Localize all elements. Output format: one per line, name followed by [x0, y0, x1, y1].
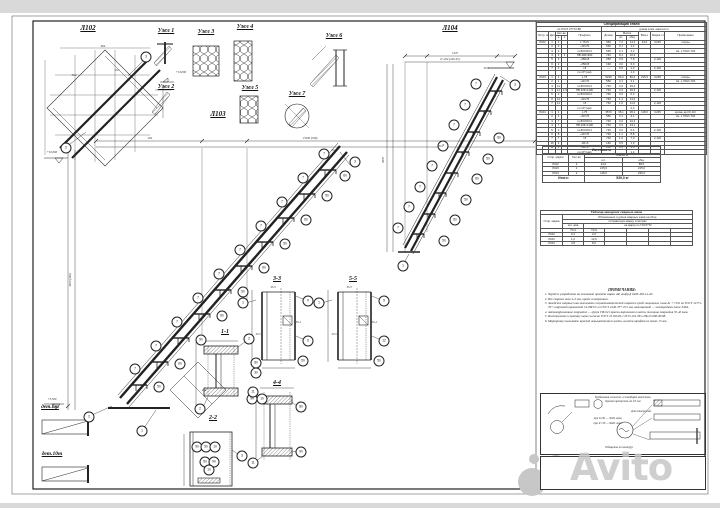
callout-bubble: 7: [130, 364, 141, 375]
callout-bubble: 7: [460, 100, 471, 111]
label-uzel7: Узел 7: [289, 91, 305, 97]
quality-line1: Кромки притупить до 0,5 мм: [541, 400, 705, 403]
label-section-5-5: 5-5: [349, 276, 357, 282]
callout-bubble: 5п: [322, 191, 333, 202]
quality-requirements-box: Требования согласно «Стандарт качества» …: [540, 393, 706, 455]
callout-bubble: 3п: [251, 368, 262, 379]
callout-bubble: 8п: [296, 402, 307, 413]
label-uzel1: Узел 1: [158, 28, 174, 34]
dimension-text: 294: [202, 388, 207, 392]
dimension-text: Уз.3: [346, 285, 351, 289]
callout-bubble: 7: [193, 293, 204, 304]
callout-bubble: 1: [137, 426, 148, 437]
label-uzel2: Узел 2: [158, 84, 174, 90]
label-det6: дет.6т: [41, 404, 59, 410]
dimension-text: Уз.1: [114, 68, 119, 72]
callout-bubble: 1: [398, 261, 409, 272]
callout-bubble: 7: [427, 161, 438, 172]
callout-bubble: 9п: [296, 447, 307, 458]
dimension-text: Уз.5: [331, 332, 336, 336]
label-l102: Л102: [80, 24, 95, 32]
notes-block: ПРИМЕЧАНИЯ: Чертёж разработан на основан…: [541, 288, 703, 325]
section-1-1: [196, 341, 246, 407]
callout-bubble: 6п: [450, 215, 461, 226]
callout-bubble: 5п: [483, 154, 494, 165]
callout-bubble: 1п: [257, 394, 268, 405]
dimension-text: 4670 (346): [68, 273, 72, 286]
dimension-text: 1347: [452, 51, 458, 55]
callout-bubble: 7: [151, 341, 162, 352]
callout-bubble: 5п: [298, 356, 309, 367]
callout-bubble: 7: [256, 221, 267, 232]
make-title: Изготовить: [543, 147, 661, 154]
make-total-value: 539,0 кг: [585, 175, 661, 182]
callout-bubble: 7: [277, 197, 288, 208]
callout-bubble: 2: [61, 143, 72, 154]
callout-bubble: 7: [298, 173, 309, 184]
label-section-1-1: 1-1: [221, 329, 229, 335]
dimension-text: +3,300: [48, 397, 57, 401]
callout-bubble: 3: [350, 157, 361, 168]
spec-col-note: Примечание: [665, 31, 707, 40]
quality-note-1: при δ≤30 — Ф18, зенк.: [594, 416, 623, 420]
drawing-sheet-page: Л102 Узел 1 Узел 2 Узел 3 Узел 4 Узел 5 …: [0, 0, 720, 508]
quality-note-3: Для отверстий: [631, 409, 651, 413]
l103-elevation: [44, 139, 537, 428]
label-section-3-3: 3-3: [273, 276, 281, 282]
callout-bubble: 2: [244, 334, 255, 345]
dimension-text: Уз.1: [331, 148, 336, 152]
weld-row: Л1044,88,0: [541, 241, 693, 245]
label-l104: Л104: [442, 24, 457, 32]
spec-col-det: Дет.: [549, 31, 556, 40]
uzel1-sketch: [154, 42, 173, 66]
callout-bubble: 7: [172, 317, 183, 328]
spec-col-len: Длина: [602, 31, 616, 40]
uzel4-sketch: [234, 41, 252, 81]
callout-bubble: 1п: [210, 442, 221, 453]
callout-bubble: 2: [84, 412, 95, 423]
callout-bubble: 3: [510, 80, 521, 91]
spec-col-steel: Марка стали: [651, 31, 665, 40]
uzel7-sketch: [285, 104, 309, 128]
callout-bubble: 6: [303, 336, 314, 347]
callout-bubble: 5п: [374, 356, 385, 367]
callout-bubble: 6п: [472, 174, 483, 185]
det6-sketch: [42, 418, 88, 436]
dimension-text: Уз.7: [438, 144, 443, 148]
dimension-text: 4570: [381, 157, 385, 163]
weld-col-mark: Отпр. марка: [541, 215, 563, 228]
label-section-4-4: 4-4: [273, 380, 281, 386]
callout-bubble: 1: [238, 298, 249, 309]
callout-bubble: 2: [195, 404, 206, 415]
dimension-text: +10,000: [176, 70, 186, 74]
callout-bubble: 5п: [238, 287, 249, 298]
callout-bubble: 6п: [340, 171, 351, 182]
spec-col-all: Всего: [639, 31, 651, 40]
label-l103: Л103: [210, 110, 225, 118]
callout-bubble: 5п: [461, 195, 472, 206]
callout-bubble: 1: [314, 298, 325, 309]
callout-bubble: 7: [471, 79, 482, 90]
spec-col-profile: Профиль: [568, 31, 602, 40]
dimension-text: Уз.3: [270, 285, 275, 289]
callout-bubble: 11: [248, 458, 259, 469]
make-col-mark: Отпр. марки: [543, 154, 569, 163]
det10-sketch: [42, 465, 88, 483]
note-item: Маркировку выполнять краской невыцветаем…: [548, 320, 703, 324]
callout-bubble: 7: [415, 182, 426, 193]
label-uzel4: Узел 4: [237, 24, 253, 30]
callout-bubble: 5п: [439, 236, 450, 247]
callout-bubble: 6п: [175, 359, 186, 370]
callout-bubble: 6п: [259, 263, 270, 274]
note-item: Заводские сварные швы выполнять полуавто…: [548, 302, 703, 310]
dimension-text: 15290 (346): [303, 136, 318, 140]
weld-table: Таблица заводских сварных швов Отпр. мар…: [540, 210, 692, 246]
quality-note-4: Обварить по контуру: [605, 445, 633, 449]
dimension-text: +10,000: [47, 150, 57, 154]
label-section-2-2: 2-2: [209, 415, 217, 421]
uzel2-sketch: [152, 86, 171, 118]
callout-bubble: 7: [393, 223, 404, 234]
spec-col-mark: Отпр. марка: [537, 31, 549, 40]
uzel3-sketch: [193, 46, 219, 76]
dimension-text: 294: [148, 136, 153, 140]
l104-elevation: [387, 54, 517, 263]
label-det10: дет.10т: [42, 451, 63, 457]
callout-bubble: 1п: [204, 465, 215, 476]
dimension-text: 664: [101, 44, 106, 48]
callout-bubble: 5п: [196, 335, 207, 346]
dimension-text: Уз.2: [71, 73, 76, 77]
uzel5-sketch: [240, 96, 258, 123]
callout-bubble: 11: [248, 387, 259, 398]
make-table: Изготовить Отпр. марки Кол-во Масса, кг …: [542, 146, 660, 183]
callout-bubble: 5п: [154, 382, 165, 393]
label-uzel6: Узел 6: [326, 33, 342, 39]
title-block: [540, 456, 706, 490]
callout-bubble: 6п: [494, 133, 505, 144]
callout-bubble: 3: [141, 52, 152, 63]
dimension-text: Уз.6: [483, 66, 488, 70]
callout-bubble: 7: [404, 202, 415, 213]
section-5-5: [322, 288, 381, 368]
quality-title: Требования согласно «Стандарт качества»: [541, 395, 705, 399]
dimension-text: Уз.4: [295, 320, 300, 324]
label-uzel5: Узел 5: [242, 85, 258, 91]
make-col-qty: Кол-во: [569, 154, 585, 163]
callout-bubble: 12: [379, 336, 390, 347]
callout-bubble: 7: [449, 120, 460, 131]
dimension-text: Уз.4: [371, 320, 376, 324]
callout-bubble: 3: [237, 451, 248, 462]
callout-bubble: 7: [319, 149, 330, 160]
callout-bubble: 7: [235, 245, 246, 256]
section-3-3: [246, 288, 305, 368]
make-total-label: Итого:: [543, 175, 585, 182]
dimension-text: Уз.5: [255, 332, 260, 336]
dimension-text: 6×294 (249-45): [440, 57, 459, 61]
callout-bubble: 9: [303, 296, 314, 307]
callout-bubble: 7: [214, 269, 225, 280]
callout-bubble: 6п: [217, 311, 228, 322]
label-uzel3: Узел 3: [198, 29, 214, 35]
spec-table: Спецификация стали по ГОСТ 27772-88 длин…: [536, 22, 706, 155]
quality-note-2: при δ>30 — Ф28, зенк.: [594, 421, 623, 425]
uzel6-sketch: [310, 46, 347, 87]
callout-bubble: 5п: [280, 239, 291, 250]
callout-bubble: 9: [379, 296, 390, 307]
callout-bubble: 6п: [301, 215, 312, 226]
